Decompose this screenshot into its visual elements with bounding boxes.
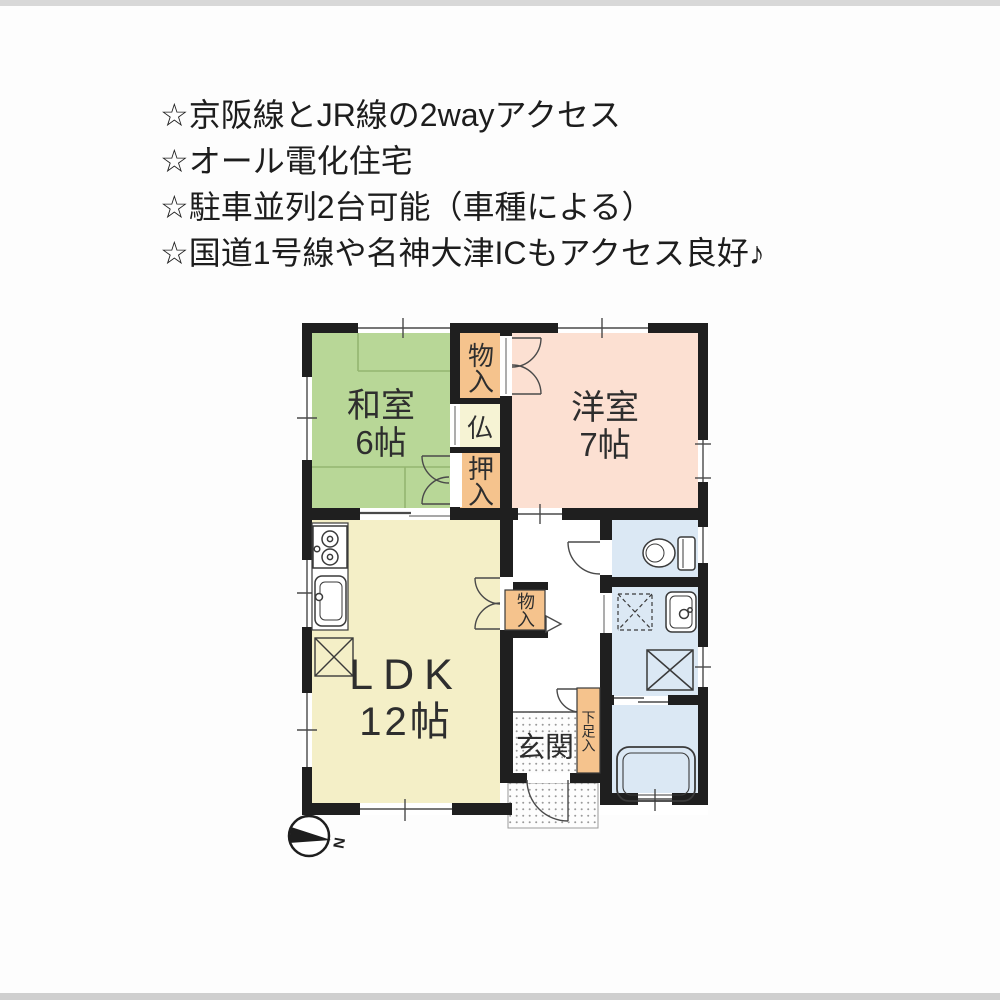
compass: N — [289, 816, 348, 856]
kitchen-sink-icon — [315, 576, 346, 626]
washitsu-size-label: 6帖 — [312, 420, 450, 460]
compass-north-label: N — [329, 836, 348, 850]
floor-plan: N — [0, 0, 1000, 1000]
washbasin-icon — [666, 592, 696, 632]
genkan-label: 玄関 — [503, 728, 587, 762]
bathroom-floor — [612, 705, 698, 793]
stove-icon — [313, 526, 347, 568]
ldk-size-label: 12帖 — [310, 696, 502, 740]
oshiire-label: 押入 — [460, 452, 500, 510]
closet-hall-label: 物入 — [505, 589, 545, 631]
butsudan-label: 仏 — [460, 406, 500, 446]
bottom-border — [0, 993, 1000, 1000]
shoe-cabinet-label: 下足入 — [577, 691, 600, 771]
youshitsu-size-label: 7帖 — [512, 422, 698, 462]
flyer-page: ☆京阪線とJR線の2wayアクセス ☆オール電化住宅 ☆駐車並列2台可能（車種に… — [0, 0, 1000, 1000]
porch-tile — [508, 783, 598, 828]
closet-top-label: 物入 — [460, 336, 500, 400]
